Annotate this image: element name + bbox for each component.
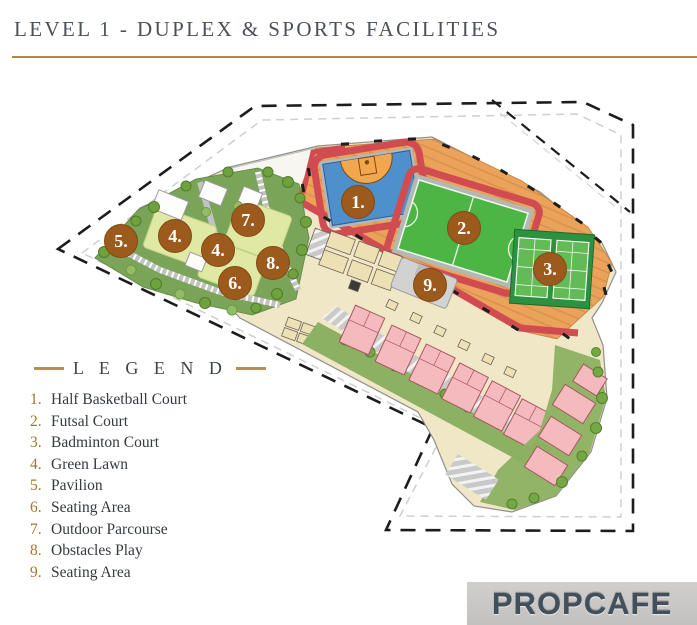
propcafe-watermark: PROPCAFE [467,582,697,625]
plan-marker-5: 5. [105,225,138,258]
legend-item: 1.Half Basketball Court [30,389,270,411]
legend-dash-right [236,367,266,370]
svg-text:3.: 3. [543,259,557,279]
svg-text:6.: 6. [228,273,242,293]
svg-text:4.: 4. [211,240,225,260]
svg-text:4.: 4. [168,226,182,246]
screenshot-root: LEVEL 1 - DUPLEX & SPORTS FACILITIES [0,0,697,625]
plan-marker-9: 9. [414,269,447,302]
plan-marker-2: 2. [448,212,481,245]
plan-marker-3: 3. [534,253,567,286]
svg-text:8.: 8. [266,253,280,273]
plan-marker-4: 4. [202,234,235,267]
svg-text:7.: 7. [241,210,255,230]
legend: L E G E N D 1.Half Basketball Court 2.Fu… [30,358,270,583]
legend-dash-left [34,367,64,370]
plan-marker-8: 8. [257,247,290,280]
legend-item: 4.Green Lawn [30,454,270,476]
svg-text:2.: 2. [457,218,471,238]
legend-title: L E G E N D [73,358,227,379]
legend-item: 6.Seating Area [30,497,270,519]
legend-item: 7.Outdoor Parcourse [30,519,270,541]
svg-text:1.: 1. [351,192,365,212]
svg-text:5.: 5. [114,231,128,251]
plan-marker-4: 4. [159,220,192,253]
plan-marker-1: 1. [342,186,375,219]
plan-marker-7: 7. [232,204,265,237]
svg-text:9.: 9. [423,275,437,295]
legend-item: 8.Obstacles Play [30,540,270,562]
plan-marker-6: 6. [219,267,252,300]
legend-item: 3.Badminton Court [30,432,270,454]
legend-item: 9.Seating Area [30,562,270,584]
legend-item: 5.Pavilion [30,475,270,497]
legend-item: 2.Futsal Court [30,411,270,433]
legend-heading: L E G E N D [34,358,270,379]
